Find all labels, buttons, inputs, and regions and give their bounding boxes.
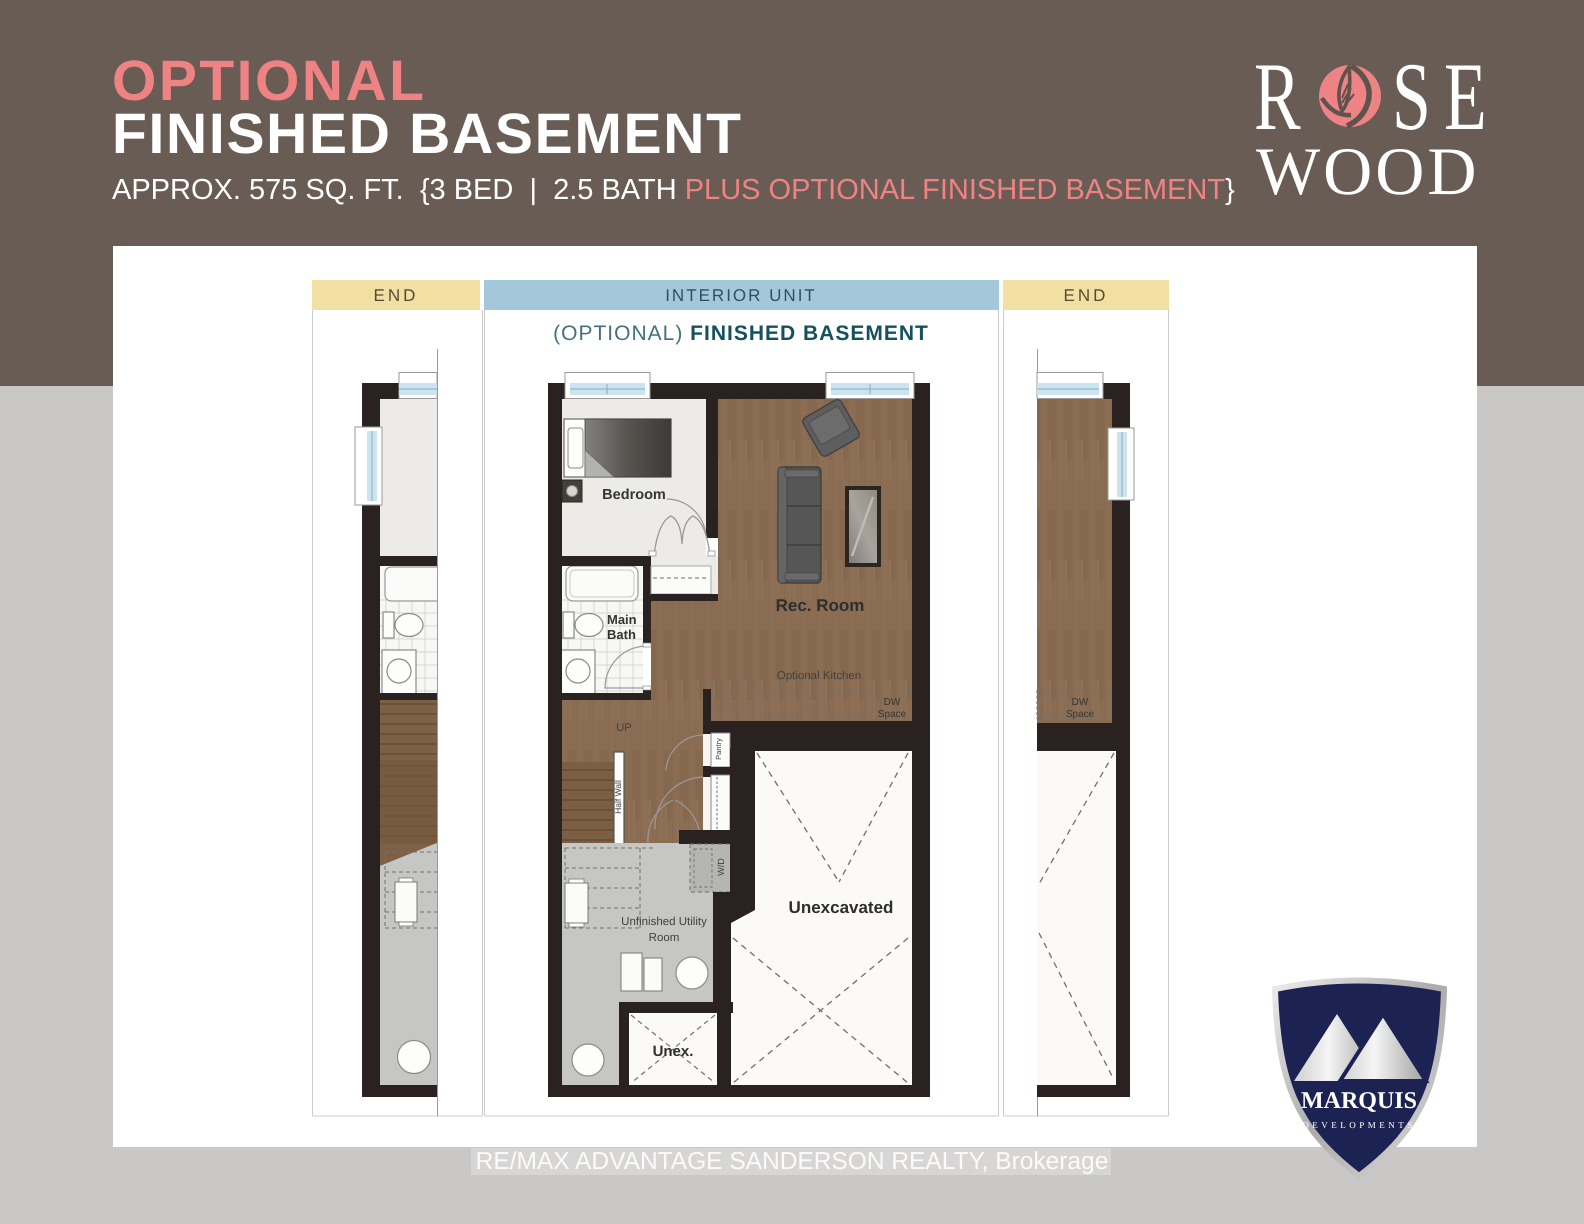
svg-text:DW: DW bbox=[884, 697, 901, 708]
svg-text:Rec. Room: Rec. Room bbox=[776, 596, 865, 615]
svg-text:Main: Main bbox=[607, 612, 637, 627]
svg-text:Optional Kitchen: Optional Kitchen bbox=[777, 670, 861, 682]
svg-text:Space: Space bbox=[878, 709, 907, 720]
svg-text:Unex.: Unex. bbox=[653, 1043, 694, 1060]
svg-text:END: END bbox=[374, 286, 419, 305]
svg-text:DEVELOPMENTS: DEVELOPMENTS bbox=[1302, 1120, 1416, 1130]
svg-text:Unfinished Utility: Unfinished Utility bbox=[621, 916, 707, 928]
svg-text:MARQUIS: MARQUIS bbox=[1301, 1088, 1417, 1114]
svg-text:(OPTIONAL) FINISHED BASEMENT: (OPTIONAL) FINISHED BASEMENT bbox=[553, 322, 929, 345]
svg-text:Bath: Bath bbox=[607, 627, 636, 642]
svg-text:W/D: W/D bbox=[716, 858, 726, 876]
svg-text:INTERIOR UNIT: INTERIOR UNIT bbox=[665, 286, 817, 305]
svg-text:END: END bbox=[1064, 286, 1109, 305]
svg-text:Room: Room bbox=[649, 932, 680, 944]
svg-text:Pantry: Pantry bbox=[714, 738, 723, 760]
svg-text:Unexcavated: Unexcavated bbox=[789, 898, 894, 917]
svg-text:Bedroom: Bedroom bbox=[602, 487, 666, 503]
svg-text:DW: DW bbox=[1072, 697, 1089, 708]
svg-text:Space: Space bbox=[1066, 709, 1095, 720]
svg-text:UP: UP bbox=[616, 722, 631, 734]
svg-text:Half Wall: Half Wall bbox=[613, 780, 623, 814]
